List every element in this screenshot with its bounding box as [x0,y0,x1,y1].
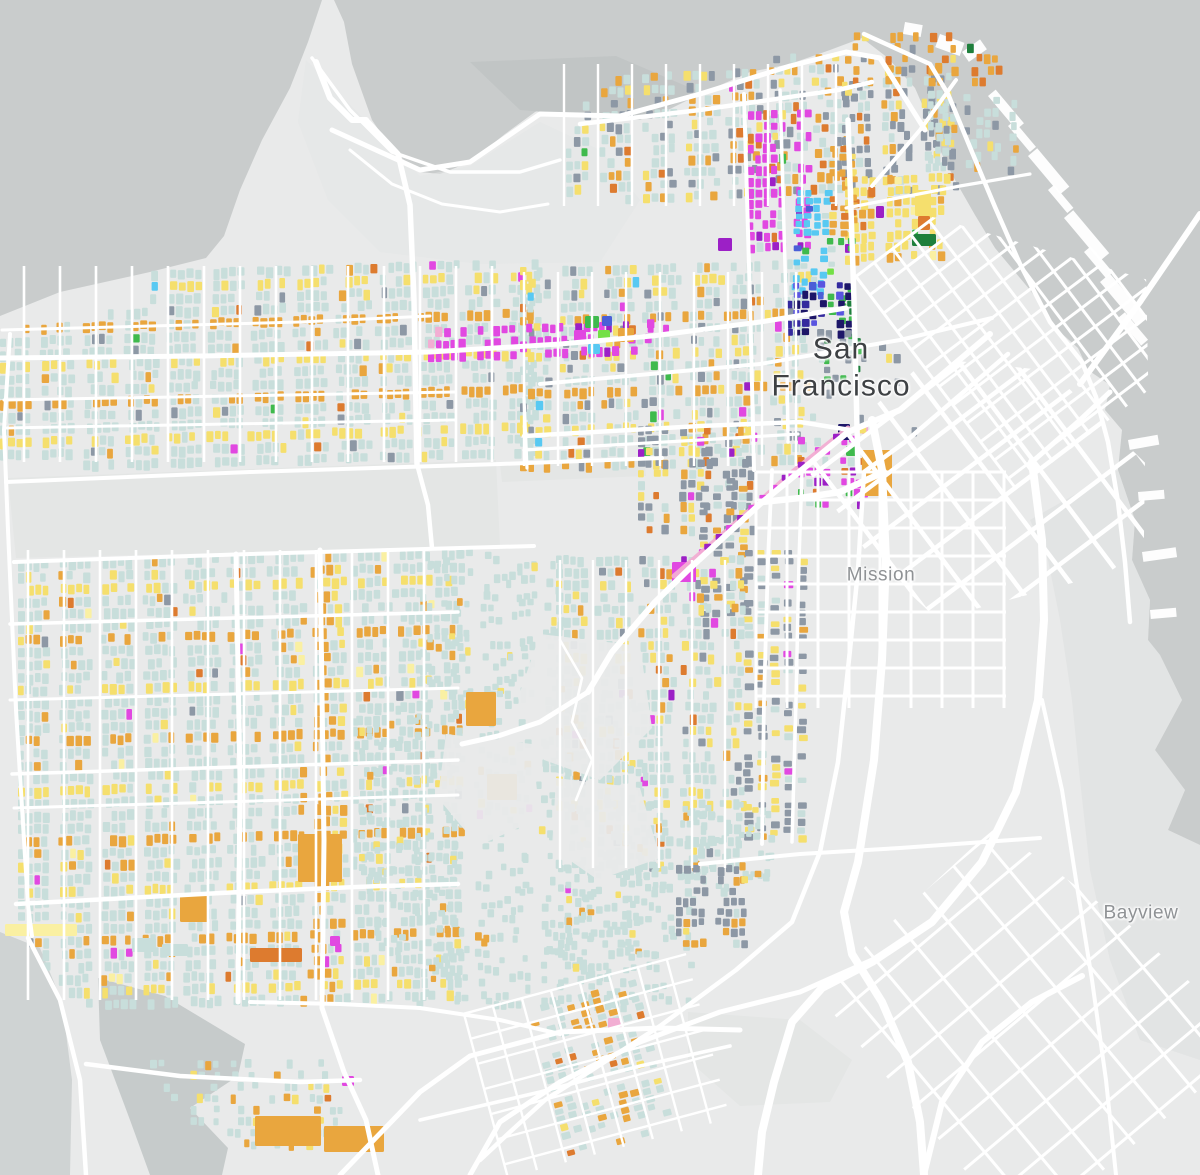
map-canvas[interactable] [0,0,1200,1175]
map-viewport[interactable]: San Francisco Mission Bayview [0,0,1200,1175]
